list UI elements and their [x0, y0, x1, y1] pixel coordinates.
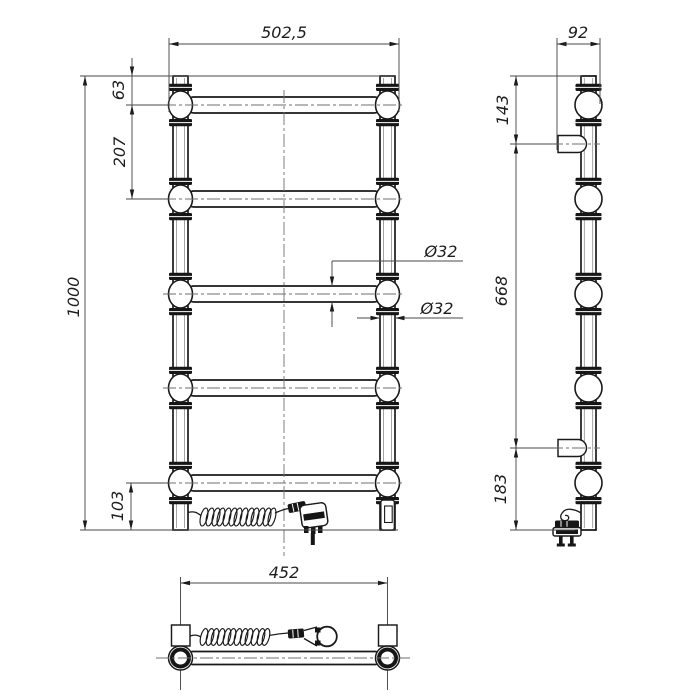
plug-pin-side: [559, 536, 563, 544]
bottom-view: 452: [156, 563, 410, 690]
cord-coil-front: [198, 507, 277, 526]
cord-ferrule-bottom: [288, 628, 305, 638]
dim-label-depth: 92: [568, 23, 588, 42]
power-cord-bottom: [190, 627, 337, 647]
dim-label-bracket-span: 668: [492, 276, 511, 307]
dim-label-top-bracket: 143: [493, 95, 512, 126]
bottom-right-bracket: [379, 625, 398, 646]
dimension-mount-width: 452: [181, 563, 388, 585]
dim-label-bottom-offset: 103: [108, 491, 127, 522]
dimension-top-offset-and-pitch: 63 207: [109, 58, 169, 199]
front-view: 502,5 1000 63 207: [64, 23, 463, 556]
dim-label-top-offset: 63: [109, 80, 128, 100]
heating-element-window: [381, 500, 395, 530]
plug-bottom: [315, 627, 337, 647]
plug-pin-side: [570, 536, 574, 544]
dim-label-bottom-bracket: 183: [491, 474, 510, 505]
power-cord-front: [188, 501, 328, 545]
bottom-left-bracket: [172, 625, 191, 646]
dimension-bottom-offset: 103: [108, 483, 169, 530]
side-view: 92 143 668 183: [491, 23, 602, 547]
dim-label-mount-width: 452: [269, 563, 300, 582]
dim-label-crossbar-diameter: Ø32: [424, 242, 458, 261]
dim-label-post-diameter: Ø32: [420, 299, 454, 318]
power-cord-side: [553, 509, 581, 546]
drawing-canvas: 502,5 1000 63 207: [0, 0, 700, 700]
plug-front: [299, 502, 328, 545]
plug-pin-front: [311, 533, 315, 545]
dim-label-bar-pitch: 207: [110, 136, 129, 167]
dim-label-overall-width: 502,5: [261, 23, 307, 42]
dim-label-overall-height: 1000: [64, 277, 83, 318]
towel-rail-drawing: 502,5 1000 63 207: [0, 0, 700, 700]
